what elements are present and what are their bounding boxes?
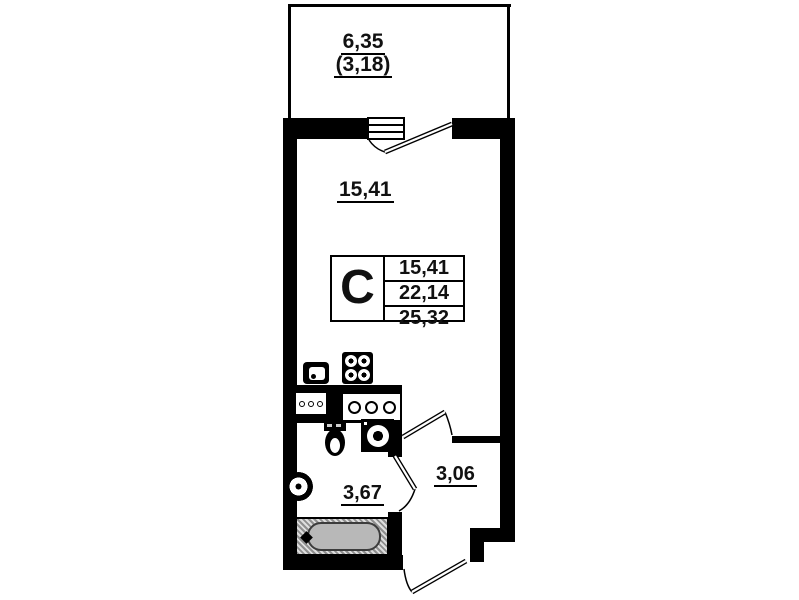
bathroom-door-leaf	[395, 456, 415, 489]
balcony-area-coeff-label: (3,18)	[322, 54, 404, 78]
balcony-area-coeff-value: (3,18)	[334, 54, 393, 78]
room-area-value: 15,41	[337, 179, 394, 203]
window-pane-line	[369, 124, 403, 126]
vent-duct-large	[341, 392, 402, 422]
vent-hole	[308, 401, 314, 407]
toilet-bowl-inner	[330, 438, 340, 453]
vent-hole	[317, 401, 323, 407]
area-without-balcony-value: 22,14	[385, 280, 463, 305]
toilet-tank-detail	[336, 424, 341, 427]
bathroom-area-label: 3,67	[341, 482, 384, 506]
apartment-info-box: С 15,41 22,14 25,32	[330, 255, 465, 322]
vent-hole	[383, 401, 396, 414]
exterior-wall-bottom	[283, 555, 403, 570]
stove-icon	[342, 352, 373, 384]
apartment-areas: 15,41 22,14 25,32	[385, 257, 463, 320]
room-area-label: 15,41	[337, 179, 394, 203]
hallway-wall-top	[452, 436, 500, 443]
vent-duct-small	[294, 391, 328, 416]
bathtub-icon	[295, 517, 389, 556]
balcony-wall-right	[507, 4, 510, 118]
stove-burner	[345, 355, 357, 367]
balcony-door-arc	[369, 140, 385, 152]
bathroom-door-leaf-core	[395, 456, 415, 489]
stove-burner	[345, 369, 357, 381]
bathroom-area-value: 3,67	[341, 482, 384, 506]
exterior-wall-right	[500, 118, 515, 542]
window-pane-line	[369, 131, 403, 133]
hall-door-leaf-core	[403, 412, 445, 437]
bathroom-door-arc	[399, 489, 415, 511]
vent-hole	[299, 401, 305, 407]
washing-machine-detail	[364, 422, 367, 425]
hall-area-value: 3,06	[434, 463, 477, 487]
vent-hole	[365, 401, 378, 414]
kitchen-sink-icon	[303, 362, 329, 384]
washing-machine-drum	[367, 425, 389, 447]
bathroom-sink-icon	[284, 472, 313, 501]
entry-door-leaf	[412, 561, 466, 592]
bathroom-wall-right-lower	[388, 512, 402, 555]
balcony-area-value: 6,35	[341, 31, 386, 55]
washing-machine-icon	[361, 419, 394, 452]
window	[367, 117, 405, 140]
living-area-value: 15,41	[385, 257, 463, 280]
balcony-wall-left	[288, 4, 291, 118]
apartment-type-label: С	[332, 257, 385, 320]
vent-hole	[348, 401, 361, 414]
toilet-bowl-icon	[325, 429, 345, 456]
entry-door-leaf-core	[412, 561, 466, 592]
entry-step-wall-vertical	[470, 528, 484, 562]
total-area-value: 25,32	[385, 305, 463, 330]
bathtub-basin	[307, 522, 381, 551]
stove-burner	[358, 369, 370, 381]
hall-door-leaf	[403, 412, 445, 437]
floorplan-studio-apartment: 6,35 (3,18) 15,41 3,67 3,06 С 15,41 22,1…	[0, 0, 799, 600]
hall-door-arc	[445, 412, 452, 435]
stove-burner	[358, 355, 370, 367]
exterior-wall-left	[283, 118, 297, 570]
entry-door-arc	[404, 569, 412, 592]
toilet-tank-detail	[327, 424, 332, 427]
balcony-wall-top	[288, 4, 511, 7]
kitchen-sink-drain	[311, 374, 316, 379]
balcony-area-label: 6,35	[322, 31, 404, 55]
hall-area-label: 3,06	[434, 463, 477, 487]
